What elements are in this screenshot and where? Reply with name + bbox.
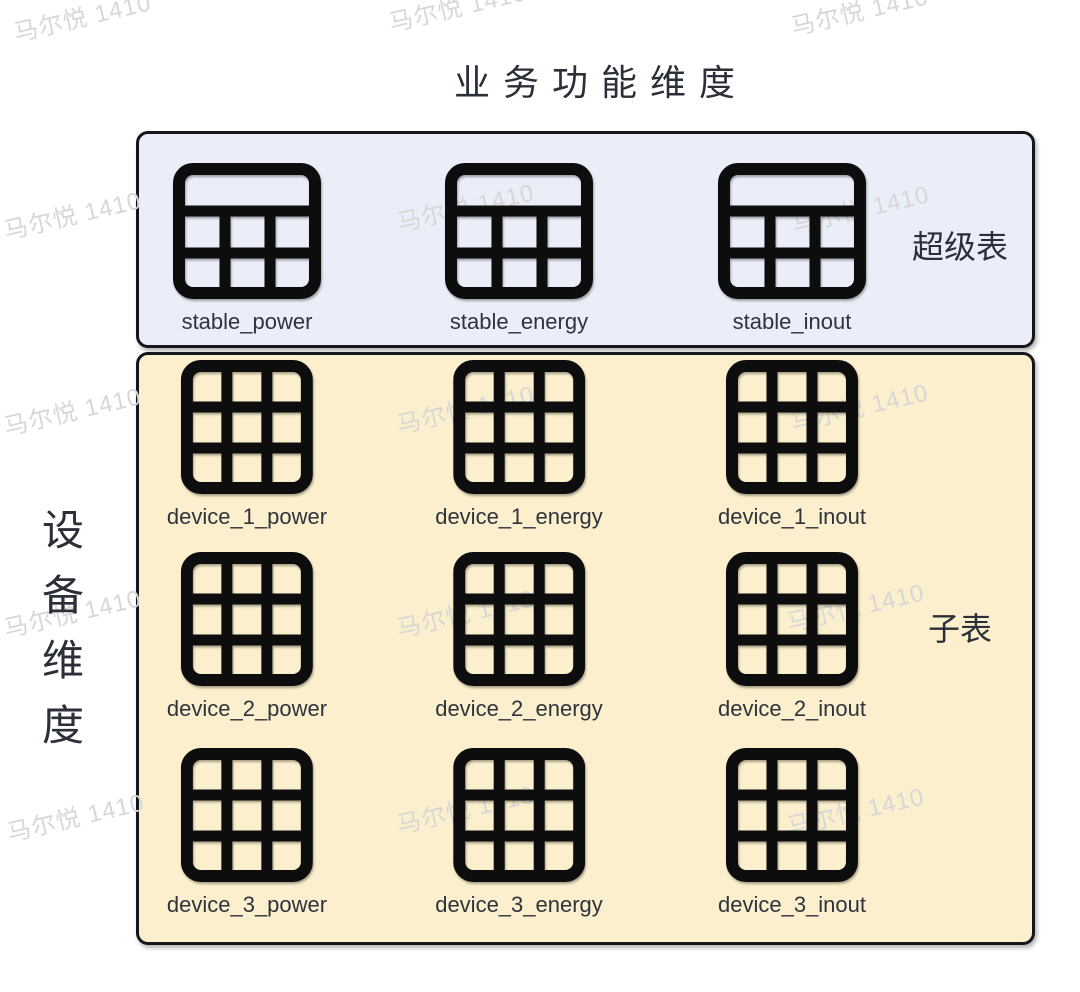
vertical-axis-label: 设备维度 <box>42 498 84 758</box>
table-name: device_3_power <box>167 892 327 918</box>
axis-char: 备 <box>42 563 84 628</box>
table-name: device_2_power <box>167 696 327 722</box>
watermark-text: 马尔悦 1410 <box>787 0 931 42</box>
sub-table-icon <box>181 360 313 494</box>
page-title: 业务功能维度 <box>454 54 748 106</box>
table-cell: device_3_power <box>167 748 327 918</box>
sub-table-icon <box>181 552 313 686</box>
axis-char: 度 <box>42 693 84 758</box>
table-cell: device_1_inout <box>718 360 866 530</box>
super-table-icon <box>445 163 593 299</box>
super-table-icon <box>718 163 866 299</box>
table-name: device_1_inout <box>718 504 866 530</box>
table-name: device_2_inout <box>718 696 866 722</box>
table-cell: stable_energy <box>445 163 593 335</box>
sub-section-label: 子表 <box>928 604 992 650</box>
table-name: stable_power <box>182 309 313 335</box>
sub-table-icon <box>726 552 858 686</box>
table-cell: stable_power <box>173 163 321 335</box>
sub-table-icon <box>726 748 858 882</box>
table-name: device_3_inout <box>718 892 866 918</box>
table-name: device_2_energy <box>435 696 603 722</box>
table-name: stable_inout <box>733 309 852 335</box>
watermark-text: 马尔悦 1410 <box>0 376 144 442</box>
super-table-icon <box>173 163 321 299</box>
table-cell: device_3_energy <box>435 748 603 918</box>
table-cell: device_2_inout <box>718 552 866 722</box>
sub-table-icon <box>453 360 585 494</box>
table-name: device_1_power <box>167 504 327 530</box>
table-cell: device_2_energy <box>435 552 603 722</box>
table-cell: device_3_inout <box>718 748 866 918</box>
table-cell: device_1_power <box>167 360 327 530</box>
axis-char: 维 <box>42 628 84 693</box>
sub-table-icon <box>726 360 858 494</box>
sub-table-icon <box>453 748 585 882</box>
table-cell: device_1_energy <box>435 360 603 530</box>
watermark-text: 马尔悦 1410 <box>0 180 144 246</box>
sub-table-icon <box>181 748 313 882</box>
table-name: stable_energy <box>450 309 588 335</box>
watermark-text: 马尔悦 1410 <box>3 782 147 848</box>
table-name: device_1_energy <box>435 504 603 530</box>
table-cell: stable_inout <box>718 163 866 335</box>
axis-char: 设 <box>42 498 84 563</box>
watermark-text: 马尔悦 1410 <box>385 0 529 38</box>
table-cell: device_2_power <box>167 552 327 722</box>
watermark-text: 马尔悦 1410 <box>10 0 154 48</box>
table-name: device_3_energy <box>435 892 603 918</box>
sub-table-icon <box>453 552 585 686</box>
super-section-label: 超级表 <box>912 222 1008 268</box>
